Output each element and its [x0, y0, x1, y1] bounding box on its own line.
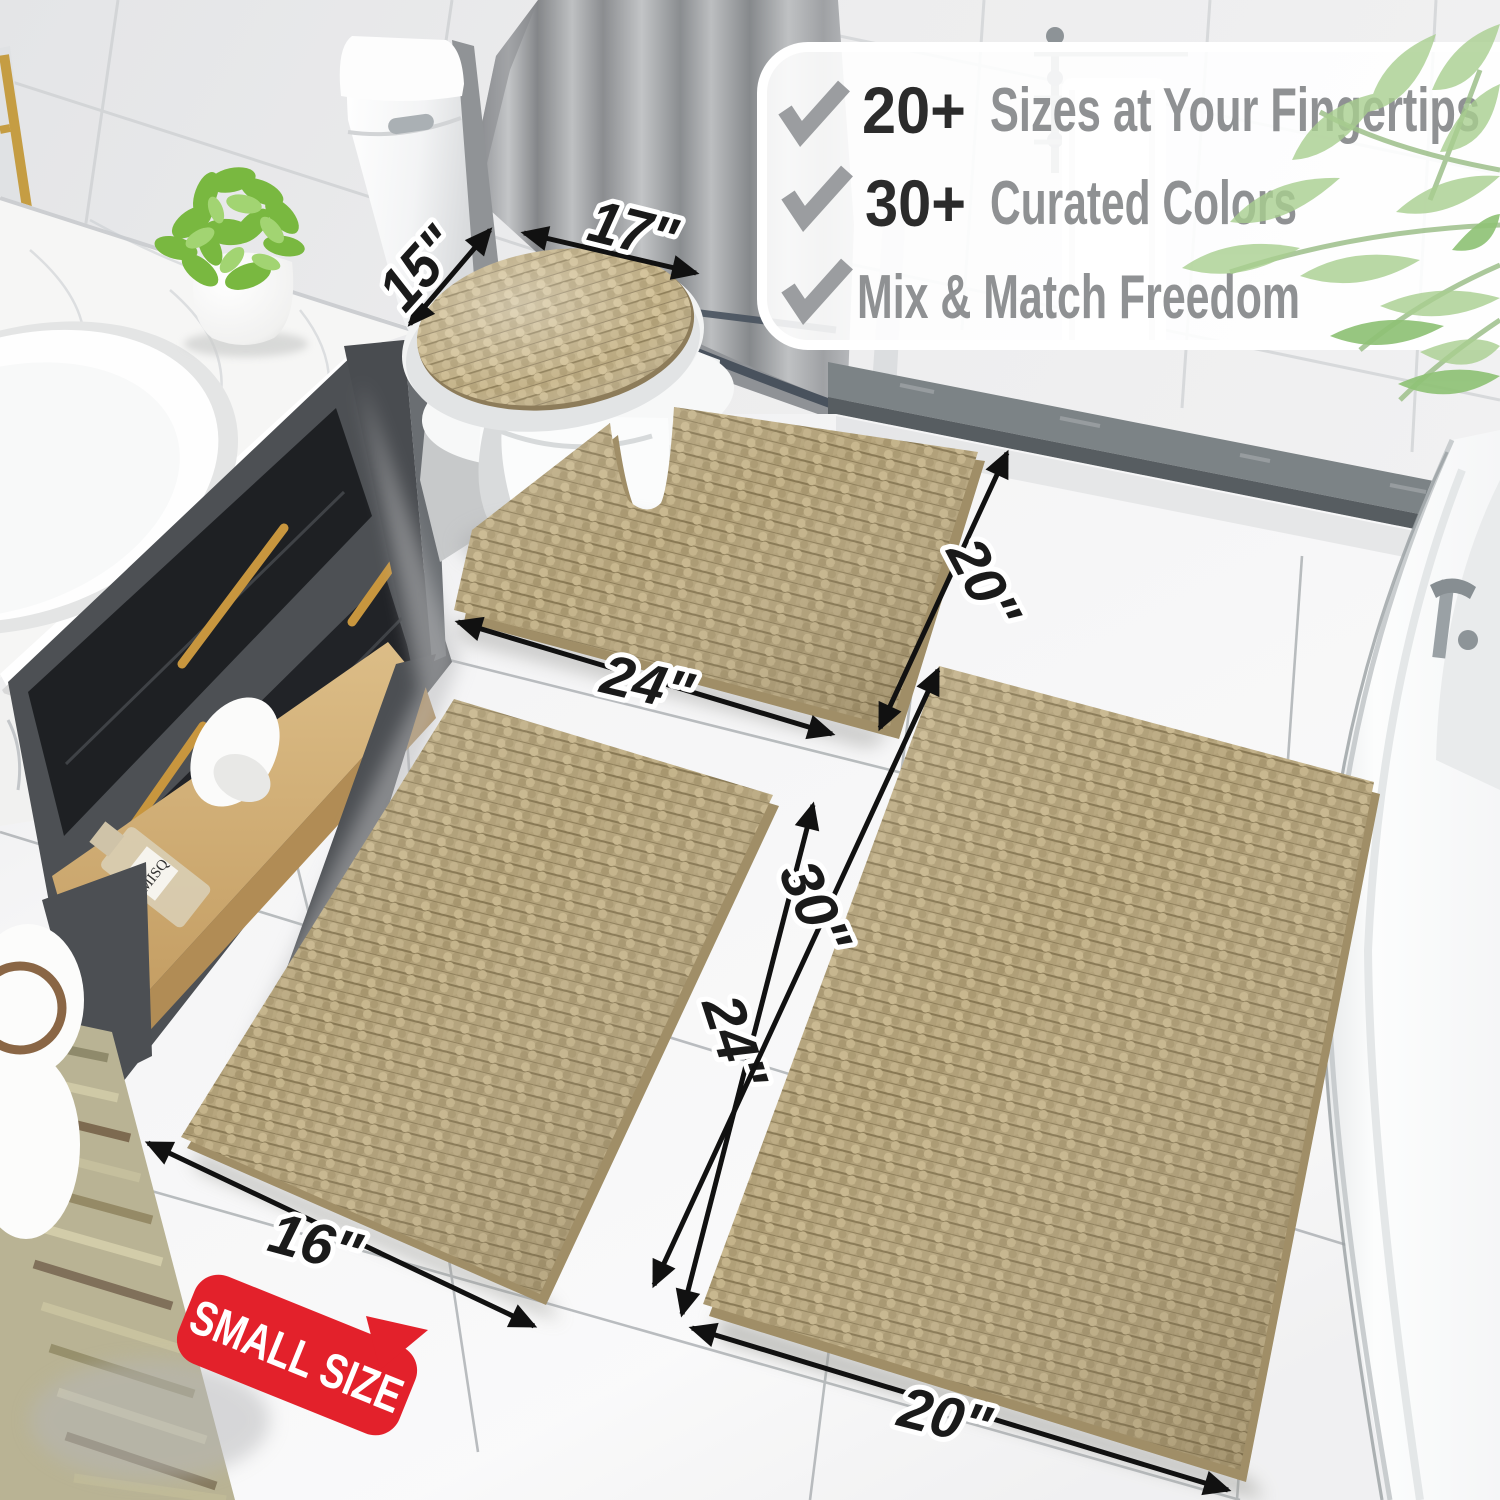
svg-text:20+: 20+	[862, 73, 966, 147]
svg-text:30+: 30+	[865, 166, 966, 240]
